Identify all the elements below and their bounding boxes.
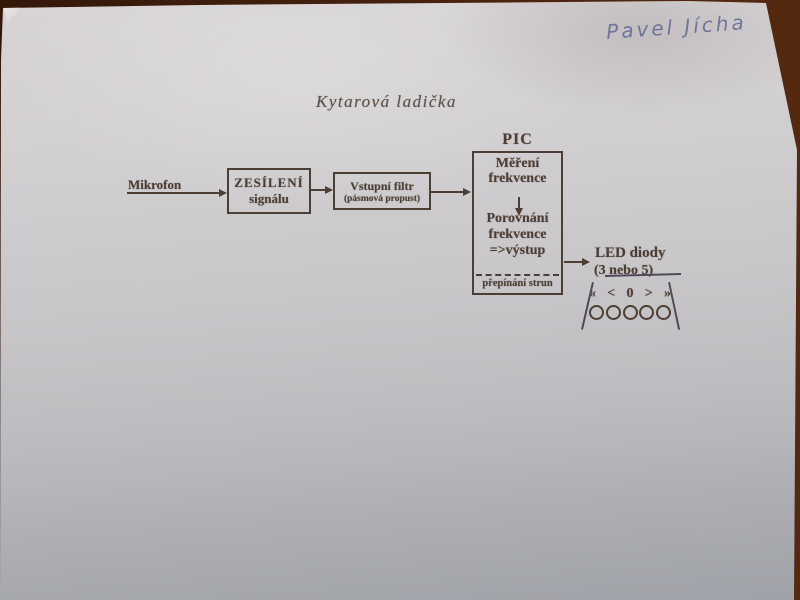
folded-paper-corner: [4, 6, 21, 25]
pic-compare-line1: Porovnání: [474, 211, 561, 227]
amplifier-box-line2: signálu: [249, 191, 289, 207]
input-filter-box-line1: Vstupní filtr: [350, 179, 414, 194]
symbol-sharp: >: [645, 286, 653, 302]
led-circles-row: [589, 305, 671, 320]
wire-mic-to-amp: [127, 192, 219, 194]
pic-box: Měření frekvence Porovnání frekvence =>v…: [472, 151, 563, 295]
pic-compare-text: Porovnání frekvence =>výstup: [474, 211, 561, 259]
led-circle-2: [606, 305, 621, 320]
wire-amp-to-filter: [311, 189, 325, 191]
pic-output-line: =>výstup: [474, 243, 561, 259]
amplifier-box: ZESÍLENÍ signálu: [227, 168, 311, 214]
wire-pic-to-led: [564, 261, 582, 263]
paper-sheet: Pavel Jícha Kytarová ladička Mikrofon ZE…: [0, 0, 800, 600]
photo-of-paper: Pavel Jícha Kytarová ladička Mikrofon ZE…: [0, 0, 800, 600]
led-circle-5: [656, 305, 671, 320]
input-filter-box-line2: (pásmová propust): [344, 194, 420, 204]
led-label: LED diody: [595, 245, 665, 262]
page-title: Kytarová ladička: [316, 92, 436, 112]
led-circle-3: [623, 305, 638, 320]
symbol-in-tune: 0: [626, 286, 633, 302]
arrowhead-pic-to-led-icon: [582, 258, 590, 266]
wire-filter-to-pic: [431, 191, 463, 193]
amplifier-box-line1: ZESÍLENÍ: [234, 175, 303, 191]
pic-measure-text: Měření frekvence: [474, 156, 561, 186]
pic-measure-line1: Měření: [474, 156, 561, 171]
symbol-flat: <: [607, 286, 615, 302]
microphone-label: Mikrofon: [128, 177, 181, 193]
led-circle-4: [639, 305, 654, 320]
pic-compare-line2: frekvence: [474, 227, 561, 243]
led-count-label: (3 nebo 5): [594, 263, 653, 279]
pic-label: PIC: [472, 131, 563, 149]
handwritten-author-name: Pavel Jícha: [605, 8, 776, 44]
input-filter-box: Vstupní filtr (pásmová propust): [333, 172, 431, 210]
pic-dashed-divider: [476, 274, 559, 276]
arrowhead-amp-to-filter-icon: [325, 186, 333, 194]
arrowhead-filter-to-pic-icon: [463, 188, 471, 196]
pic-footer-text: přepínání strun: [474, 278, 561, 289]
led-direction-symbols: « < 0 > »: [589, 286, 671, 302]
led-circle-1: [589, 305, 604, 320]
arrowhead-mic-to-amp-icon: [219, 189, 227, 197]
pic-measure-line2: frekvence: [474, 171, 561, 186]
